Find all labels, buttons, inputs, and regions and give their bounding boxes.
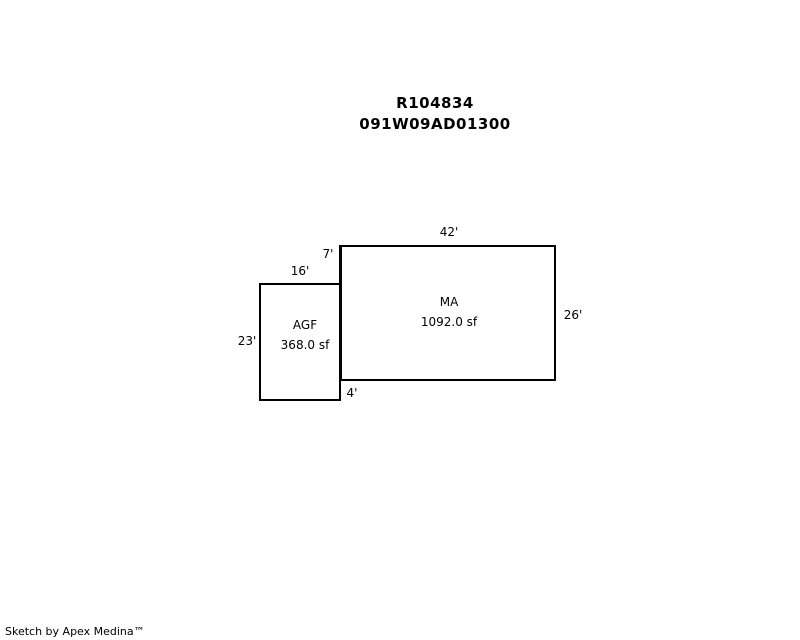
agf-area-label: AGF 368.0 sf	[281, 315, 330, 355]
ma-square-footage: 1092.0 sf	[421, 312, 477, 332]
agf-label-text: AGF	[293, 318, 317, 332]
shared-wall-line	[339, 245, 341, 401]
dimension-ma-left-upper: 7'	[323, 247, 334, 261]
dimension-ma-top: 42'	[440, 225, 459, 239]
ma-label-text: MA	[440, 295, 459, 309]
sketch-page: R104834 091W09AD01300 MA 1092.0 sf AGF 3…	[0, 0, 800, 640]
property-id: R104834	[396, 94, 474, 112]
dimension-agf-right-lower: 4'	[347, 386, 358, 400]
agf-square-footage: 368.0 sf	[281, 335, 330, 355]
ma-area-label: MA 1092.0 sf	[421, 292, 477, 332]
dimension-ma-right: 26'	[564, 308, 583, 322]
sketch-credit: Sketch by Apex Medina™	[5, 625, 145, 638]
parcel-number: 091W09AD01300	[359, 115, 510, 133]
dimension-agf-top: 16'	[291, 264, 310, 278]
dimension-agf-left: 23'	[238, 334, 257, 348]
